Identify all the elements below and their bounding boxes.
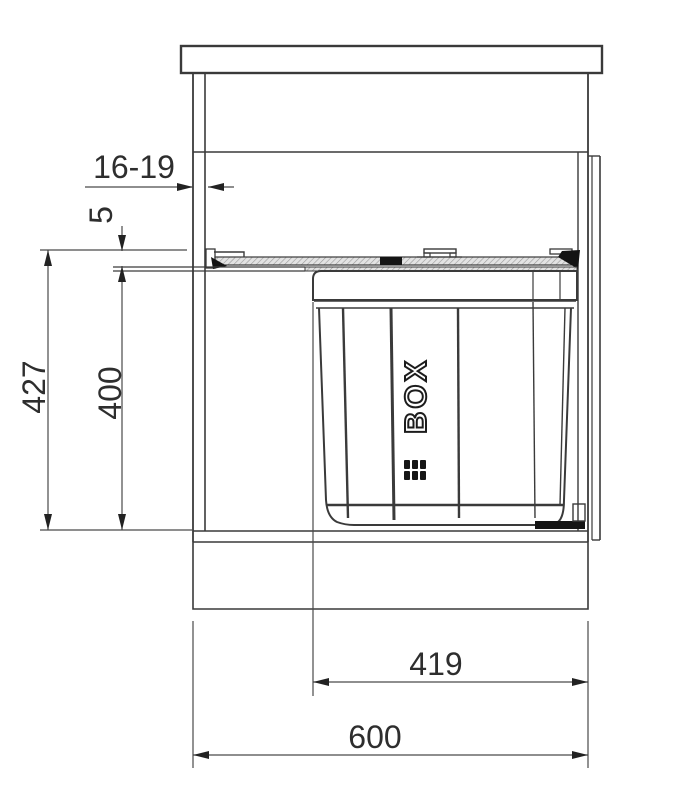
bin-hinge-block [573,504,585,521]
bin-rib-1 [343,308,348,518]
arrow-400-bottom [118,514,126,530]
arrow-419-right [572,678,588,686]
dim-label-overall-height: 427 [18,347,50,427]
bin-rib-3 [458,308,459,518]
plinth-outline [193,542,588,609]
countertop [181,46,602,73]
slide-rail-assembly [113,249,580,271]
arrow-427-bottom [44,514,52,530]
arrow-5-down [118,235,126,251]
technical-drawing-canvas: 16-19 5 427 400 419 600 BOX [0,0,699,800]
bin-logo-text: BOX [400,358,431,434]
arrow-16-19-right [177,183,193,191]
dim-label-panel-thickness: 16-19 [84,151,184,183]
dim-label-top-gap: 5 [85,185,117,245]
bin-logo-mark-icon [404,460,426,480]
dim-label-cabinet-width: 600 [335,721,415,753]
arrow-600-left [193,751,209,759]
rail-handle-bar [424,249,456,253]
rail-left-bracket-hook [214,252,244,257]
bin-logo: BOX [397,334,433,480]
rail-black-block [380,257,402,265]
arrow-600-right [572,751,588,759]
arrow-427-top [44,250,52,266]
bin-rib-2 [391,308,394,520]
arrow-419-left [313,678,329,686]
bin-hinge-bar [535,521,585,529]
bin-lid [313,271,577,300]
bin-seam-line [533,302,535,518]
arrow-400-top [118,266,126,282]
dim-label-bin-width: 419 [396,648,476,680]
arrow-16-19-left [208,183,224,191]
dim-label-bin-height: 400 [94,353,126,433]
waste-bin [313,271,585,529]
